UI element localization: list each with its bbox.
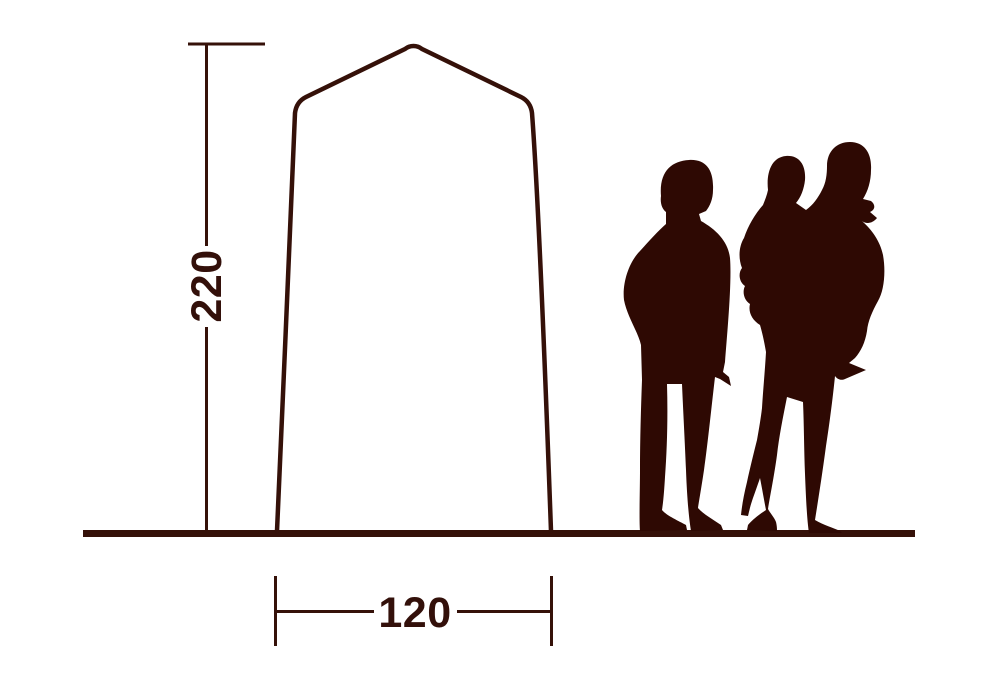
width-dimension-label: 120 bbox=[378, 589, 451, 637]
adult-silhouette bbox=[624, 160, 731, 531]
diagram-canvas: 220 120 bbox=[0, 0, 995, 682]
tent-size-diagram: 220 120 bbox=[0, 0, 995, 682]
tent-outline bbox=[277, 46, 551, 531]
people-silhouettes bbox=[624, 142, 885, 533]
height-dimension: 220 bbox=[183, 44, 265, 531]
width-dimension: 120 bbox=[276, 576, 552, 646]
adult-carrying-child-silhouette bbox=[740, 142, 885, 533]
height-dimension-label: 220 bbox=[183, 249, 231, 322]
